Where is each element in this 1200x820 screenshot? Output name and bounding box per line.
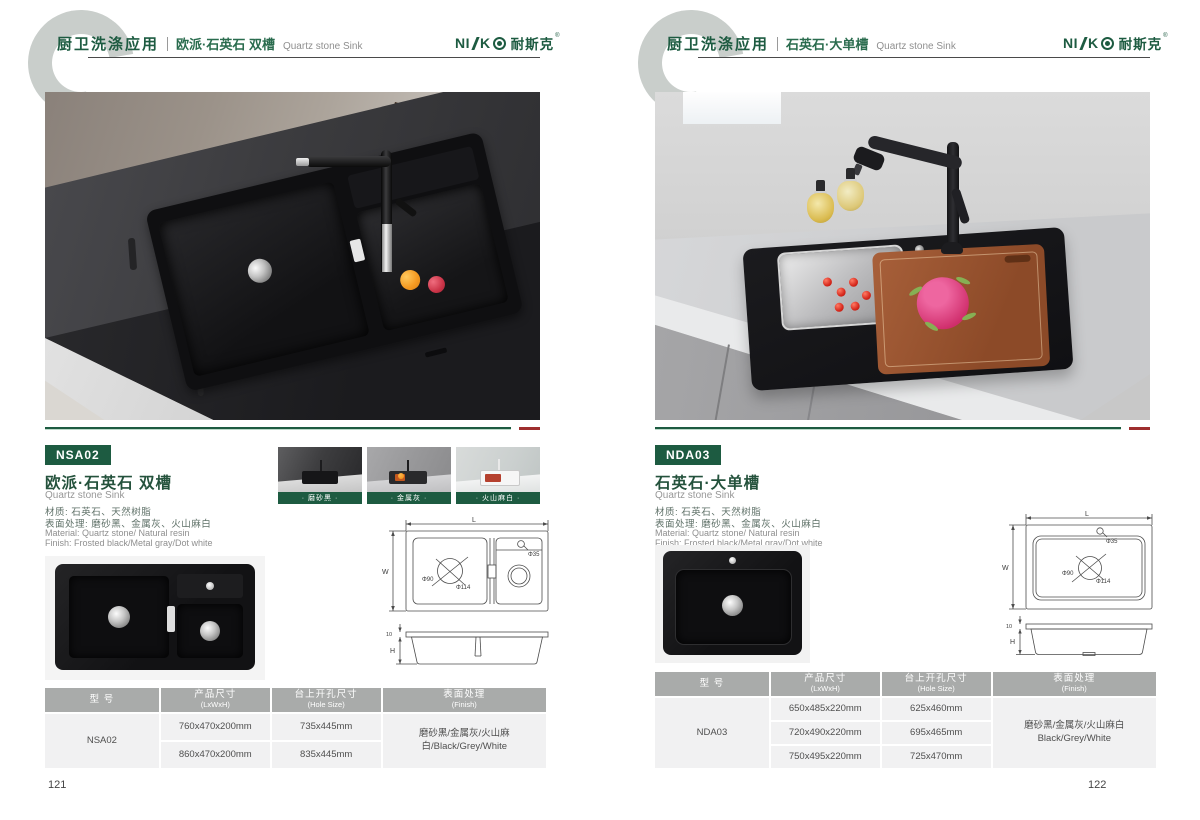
- photo-board-handle: [1004, 255, 1030, 263]
- header-rule: [698, 57, 1150, 58]
- dimension-drawing-double: L W Φ35 Φ90 Φ114 10 H: [380, 516, 558, 668]
- swatch-frosted-black: · 磨砂黑 ·: [278, 447, 362, 504]
- photo-tomato: [850, 301, 860, 311]
- header-title: 欧派·石英石 双槽: [176, 34, 275, 53]
- cell-size: 750x495x220mm: [771, 746, 880, 768]
- spec-table: 型 号 产品尺寸 (LxWxH) 台上开孔尺寸 (Hole Size) 表面处理…: [45, 688, 540, 768]
- photo-tomato: [849, 277, 859, 287]
- photo-tomato: [823, 277, 833, 287]
- cell-finish: 磨砂黑/金属灰/火山麻白/Black/Grey/White: [383, 714, 546, 768]
- header-subtitle: Quartz stone Sink: [876, 41, 955, 52]
- header-subtitle: Quartz stone Sink: [283, 41, 362, 52]
- col-header-hole: 台上开孔尺寸 (Hole Size): [272, 688, 381, 712]
- swatch-label: · 磨砂黑 ·: [278, 492, 362, 504]
- spec-table: 型 号 产品尺寸 (LxWxH) 台上开孔尺寸 (Hole Size) 表面处理…: [655, 672, 1150, 768]
- model-badge: NDA03: [655, 445, 721, 465]
- photo-tomato: [834, 302, 844, 312]
- header-category: 厨卫洗涤应用: [57, 33, 159, 54]
- col-header-model: 型 号: [45, 688, 159, 712]
- cell-model: NDA03: [655, 698, 769, 768]
- col-header-hole: 台上开孔尺寸 (Hole Size): [882, 672, 991, 696]
- page-right: 厨卫洗涤应用 石英石·大单槽 Quartz stone Sink NI K 耐斯…: [600, 0, 1200, 820]
- cell-hole: 695x465mm: [882, 722, 991, 744]
- dim-flange: 10: [386, 632, 392, 638]
- page-number: 122: [1088, 779, 1106, 791]
- cell-hole: 735x445mm: [272, 714, 381, 740]
- col-header-finish: 表面处理 (Finish): [993, 672, 1156, 696]
- brand-chip: [167, 606, 175, 632]
- photo-sink-basin-right: [356, 183, 509, 332]
- color-swatches: · 磨砂黑 · · 金属灰 · · 火山麻白 ·: [278, 447, 540, 504]
- cell-size: 860x470x200mm: [161, 742, 270, 768]
- dim-flange: 10: [1006, 624, 1012, 630]
- photo-cutting-board: [872, 244, 1050, 375]
- nisko-logo: NI K 耐斯克 ®: [455, 33, 560, 53]
- swatch-metal-gray: · 金属灰 ·: [367, 447, 451, 504]
- drain: [722, 595, 743, 616]
- faucet-hole: [729, 557, 736, 564]
- dim-d114: Φ114: [456, 585, 471, 591]
- drain: [108, 606, 130, 628]
- product-topview-image: [45, 556, 265, 680]
- accent-line-red: [1129, 427, 1150, 430]
- photo-faucet-aerator: [296, 158, 309, 166]
- photo-faucet-spout: [307, 156, 391, 167]
- catalog-spread: 厨卫洗涤应用 欧派·石英石 双槽 Quartz stone Sink NI K …: [0, 0, 1200, 820]
- swatch-image: [278, 447, 362, 492]
- accent-line-green: [45, 427, 511, 430]
- dimension-drawing-single: L W Φ35 Φ90 Φ114 10 H: [1002, 510, 1162, 660]
- swatch-image: [367, 447, 451, 492]
- cell-size: 720x490x220mm: [771, 722, 880, 744]
- faucet-hole: [206, 582, 214, 590]
- photo-tomato: [862, 291, 872, 301]
- main-photo-single-sink: [655, 92, 1150, 420]
- drain: [200, 621, 220, 641]
- dim-d35: Φ35: [1106, 539, 1118, 545]
- product-subtitle: Quartz stone Sink: [45, 490, 124, 501]
- header-rule: [88, 57, 540, 58]
- header-divider: [167, 37, 168, 51]
- logo-slash-icon: [471, 37, 479, 50]
- dim-d35: Φ35: [528, 552, 540, 558]
- photo-sink: [742, 227, 1073, 391]
- logo-o-icon: [493, 37, 506, 50]
- dim-d90: Φ90: [422, 577, 434, 583]
- logo-cn: 耐斯克: [511, 33, 555, 53]
- header-divider: [777, 37, 778, 51]
- page-header: 厨卫洗涤应用 欧派·石英石 双槽 Quartz stone Sink: [57, 33, 362, 54]
- page-left: 厨卫洗涤应用 欧派·石英石 双槽 Quartz stone Sink NI K …: [0, 0, 600, 820]
- dim-w: W: [382, 569, 389, 576]
- dim-d90: Φ90: [1062, 571, 1074, 577]
- col-header-model: 型 号: [655, 672, 769, 696]
- logo-k: K: [1088, 35, 1099, 51]
- page-number: 121: [48, 779, 66, 791]
- main-photo-double-sink: [45, 92, 540, 420]
- photo-window-light: [683, 92, 781, 124]
- product-topview-image: [655, 545, 810, 663]
- logo-o-icon: [1101, 37, 1114, 50]
- model-badge: NSA02: [45, 445, 111, 465]
- nisko-logo: NI K 耐斯克 ®: [1063, 33, 1168, 53]
- logo-ni: NI: [455, 35, 470, 51]
- swatch-dot-white: · 火山麻白 ·: [456, 447, 540, 504]
- cell-hole: 725x470mm: [882, 746, 991, 768]
- dim-l: L: [472, 517, 476, 524]
- cell-hole: 835x445mm: [272, 742, 381, 768]
- dim-w: W: [1002, 565, 1009, 572]
- logo-slash-icon: [1079, 37, 1087, 50]
- cell-model: NSA02: [45, 714, 159, 768]
- photo-tomato: [836, 287, 846, 297]
- logo-k: K: [480, 35, 491, 51]
- col-header-size: 产品尺寸 (LxWxH): [161, 688, 270, 712]
- dim-d114: Φ114: [1096, 579, 1111, 585]
- cell-hole: 625x460mm: [882, 698, 991, 720]
- accent-line-green: [655, 427, 1121, 430]
- col-header-size: 产品尺寸 (LxWxH): [771, 672, 880, 696]
- swatch-label: · 火山麻白 ·: [456, 492, 540, 504]
- logo-reg-mark: ®: [555, 33, 559, 39]
- dim-h: H: [1010, 639, 1015, 646]
- accent-line-red: [519, 427, 540, 430]
- dim-l: L: [1085, 511, 1089, 518]
- dim-h: H: [390, 648, 395, 655]
- cell-finish: 磨砂黑/金属灰/火山麻白 Black/Grey/White: [993, 698, 1156, 768]
- logo-ni: NI: [1063, 35, 1078, 51]
- spec-material-en: Material: Quartz stone/ Natural resin: [655, 528, 800, 538]
- col-header-finish: 表面处理 (Finish): [383, 688, 546, 712]
- logo-reg-mark: ®: [1163, 33, 1167, 39]
- photo-faucet-base: [382, 224, 392, 272]
- header-title: 石英石·大单槽: [786, 34, 868, 53]
- cell-size: 760x470x200mm: [161, 714, 270, 740]
- swatch-image: [456, 447, 540, 492]
- spec-material-en: Material: Quartz stone/ Natural resin: [45, 528, 190, 538]
- swatch-label: · 金属灰 ·: [367, 492, 451, 504]
- spec-finish-en: Finish: Frosted black/Metal gray/Dot whi…: [45, 538, 213, 548]
- product-subtitle: Quartz stone Sink: [655, 490, 734, 501]
- header-category: 厨卫洗涤应用: [667, 33, 769, 54]
- page-header: 厨卫洗涤应用 石英石·大单槽 Quartz stone Sink: [667, 33, 956, 54]
- cell-size: 650x485x220mm: [771, 698, 880, 720]
- logo-cn: 耐斯克: [1119, 33, 1163, 53]
- photo-faucet-base: [941, 242, 963, 254]
